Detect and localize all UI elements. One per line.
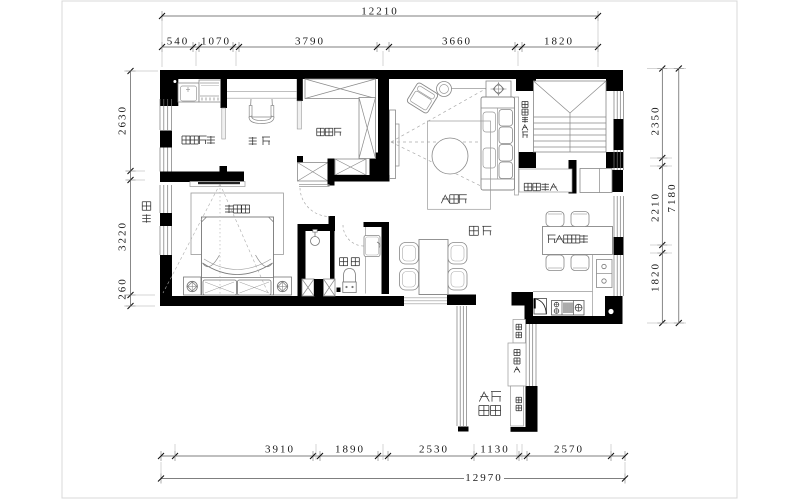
svg-text:1820: 1820 <box>650 262 662 292</box>
svg-text:2630: 2630 <box>117 105 129 135</box>
svg-text:12970: 12970 <box>465 472 503 484</box>
svg-text:1130: 1130 <box>480 444 510 456</box>
svg-text:3790: 3790 <box>295 36 325 48</box>
svg-text:2350: 2350 <box>650 106 662 136</box>
svg-text:3220: 3220 <box>117 221 129 251</box>
svg-text:2570: 2570 <box>554 444 584 456</box>
svg-text:1070: 1070 <box>201 36 231 48</box>
svg-text:12210: 12210 <box>361 6 399 18</box>
svg-text:3660: 3660 <box>442 36 472 48</box>
svg-text:7180: 7180 <box>666 183 678 213</box>
svg-text:2530: 2530 <box>419 444 449 456</box>
svg-text:1820: 1820 <box>544 36 574 48</box>
svg-text:1890: 1890 <box>335 444 365 456</box>
svg-text:2210: 2210 <box>650 192 662 222</box>
svg-text:3910: 3910 <box>265 444 295 456</box>
svg-text:540: 540 <box>167 36 190 48</box>
svg-text:260: 260 <box>117 277 129 300</box>
